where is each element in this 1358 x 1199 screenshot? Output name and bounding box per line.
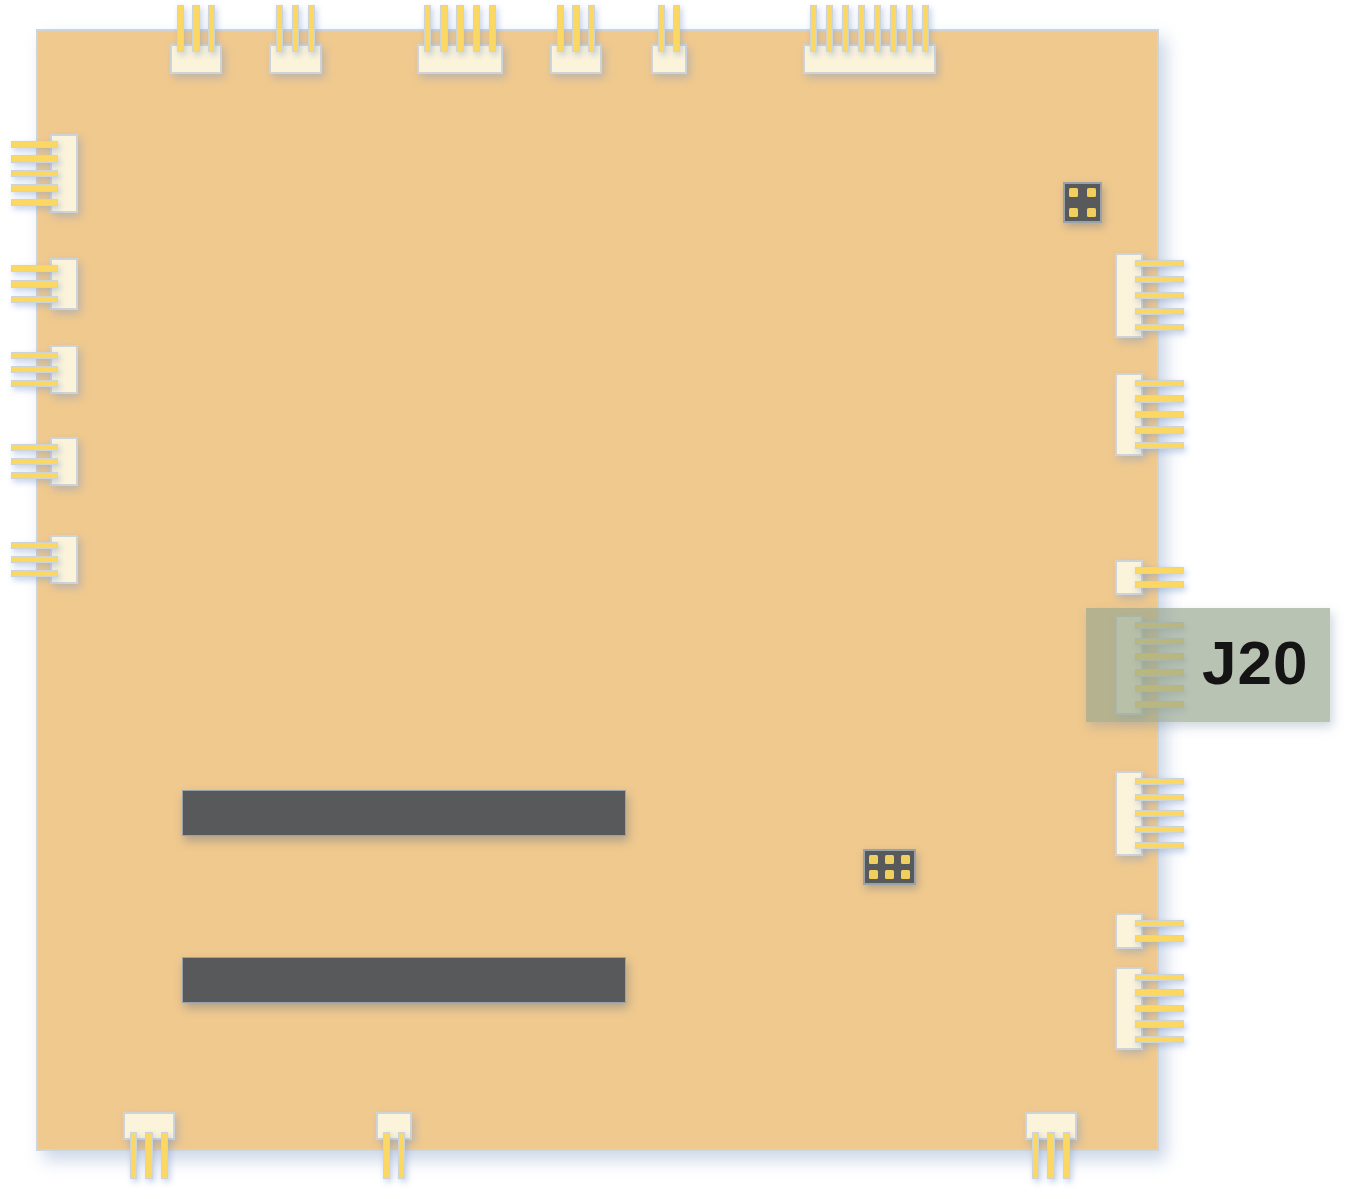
pin-icon [1135,260,1184,268]
slot-2 [182,957,626,1003]
slot-1 [182,790,626,836]
pin-icon [890,5,898,52]
pin-icon [11,141,58,149]
pin-icon [1135,974,1184,982]
pin-icon [557,5,565,52]
pad-dot-icon [1069,188,1078,197]
pin-icon [922,5,930,52]
pin-icon [572,5,580,52]
pin-icon [383,1132,391,1179]
pin-icon [11,380,58,388]
pin-icon [11,280,58,288]
pin-icon [11,296,58,304]
chip-4pad [1063,182,1102,223]
pin-icon [1135,989,1184,997]
pin-icon [906,5,914,52]
pin-icon [424,5,432,52]
pin-icon [1135,308,1184,316]
pad-dot-icon [869,855,878,864]
pin-icon [11,444,58,452]
pad-dot-icon [1087,208,1096,217]
pin-icon [1135,276,1184,284]
pin-icon [1135,1005,1184,1013]
pin-icon [130,1132,138,1179]
pin-icon [11,472,58,480]
pcb-diagram: J20 [0,0,1358,1199]
pad-dot-icon [901,870,910,879]
pin-icon [858,5,866,52]
pin-icon [1135,442,1184,450]
pin-icon [1135,567,1184,575]
pin-icon [1032,1132,1040,1179]
pad-dot-icon [885,870,894,879]
pin-icon [1135,810,1184,818]
connector-top-6 [803,44,936,74]
pad-dot-icon [885,855,894,864]
chip-6pad [863,849,916,885]
connector-right-6 [1115,913,1143,949]
pin-icon [177,5,185,52]
connector-bottom-2 [376,1112,412,1140]
pin-icon [1135,826,1184,834]
pin-icon [398,1132,406,1179]
pin-icon [1135,380,1184,388]
pin-icon [1135,395,1184,403]
pin-icon [440,5,448,52]
pin-icon [1135,1020,1184,1028]
pin-icon [1135,411,1184,419]
pad-dot-icon [869,870,878,879]
pin-icon [1135,842,1184,850]
pin-icon [673,5,681,52]
pad-dot-icon [1087,188,1096,197]
pin-icon [1047,1132,1055,1179]
pin-icon [11,155,58,163]
pin-icon [11,265,58,273]
pin-icon [658,5,666,52]
pin-icon [1135,794,1184,802]
pin-icon [1135,778,1184,786]
pin-icon [1135,426,1184,434]
connector-right-3 [1115,560,1143,595]
pin-icon [588,5,596,52]
pin-icon [11,170,58,178]
pin-icon [473,5,481,52]
pin-icon [1135,292,1184,300]
pin-icon [11,184,58,192]
pin-icon [11,366,58,374]
pad-dot-icon [1069,208,1078,217]
pin-icon [1135,920,1184,928]
pin-icon [1135,581,1184,589]
pin-icon [489,5,497,52]
pin-icon [842,5,850,52]
pin-icon [11,542,58,550]
pin-icon [145,1132,153,1179]
pin-icon [11,570,58,578]
pin-icon [11,556,58,564]
j20-highlight: J20 [1086,608,1330,722]
pin-icon [1063,1132,1071,1179]
pin-icon [1135,1036,1184,1044]
pin-icon [11,458,58,466]
pin-icon [11,199,58,207]
pin-icon [456,5,464,52]
connector-top-5 [651,44,687,74]
pin-icon [874,5,882,52]
pad-dot-icon [901,855,910,864]
pin-icon [292,5,300,52]
pin-icon [308,5,316,52]
pin-icon [11,352,58,360]
pin-icon [161,1132,169,1179]
pin-icon [208,5,216,52]
pin-icon [1135,324,1184,332]
pin-icon [276,5,284,52]
j20-label: J20 [1086,632,1308,698]
pin-icon [192,5,200,52]
pin-icon [826,5,834,52]
pin-icon [810,5,818,52]
pin-icon [1135,935,1184,943]
